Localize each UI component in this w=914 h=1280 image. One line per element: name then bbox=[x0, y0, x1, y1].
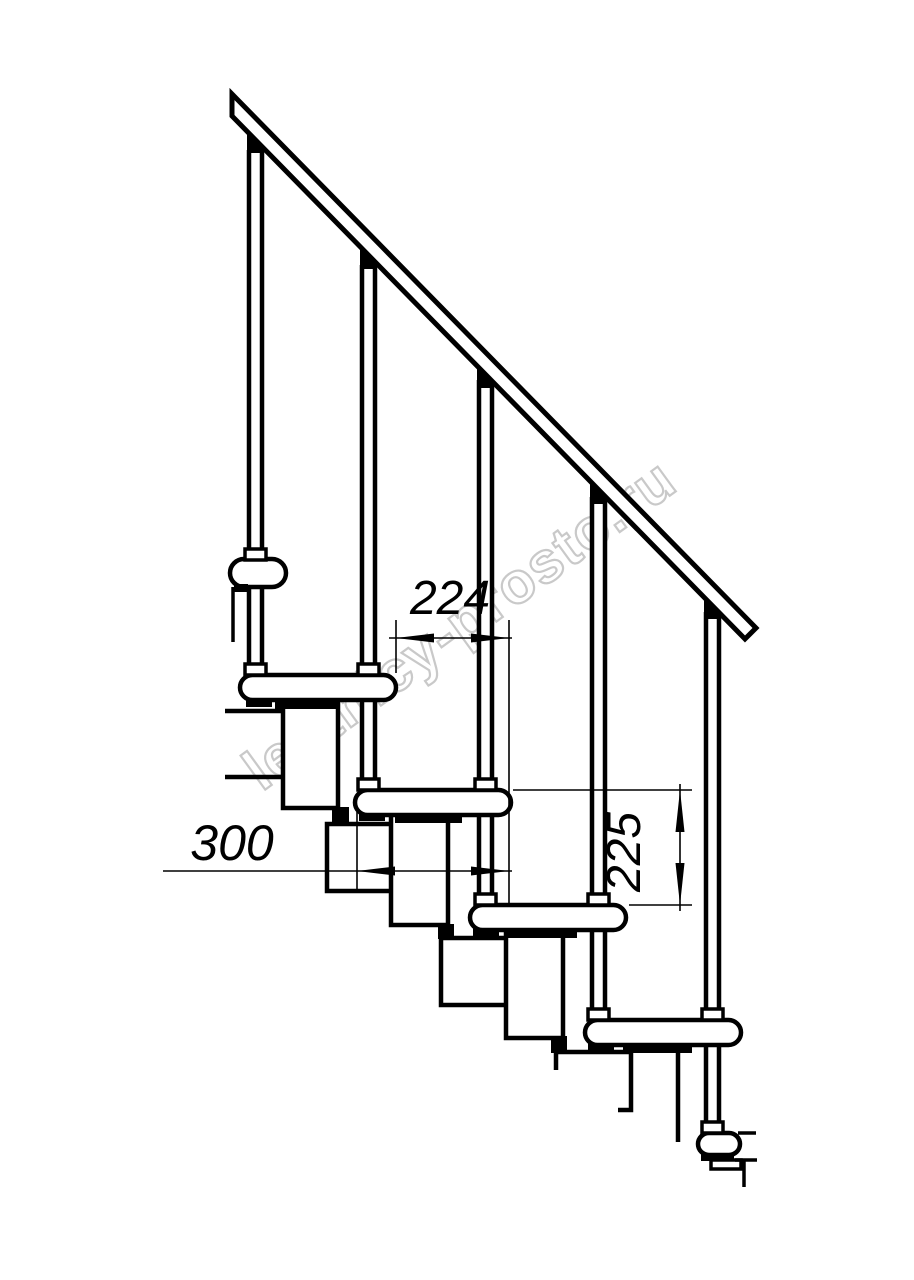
module-neck-1 bbox=[283, 700, 338, 808]
module-neck-2 bbox=[391, 812, 448, 925]
dim-label-300: 300 bbox=[190, 815, 274, 871]
dim-label-225: 225 bbox=[598, 812, 651, 893]
staircase-drawing-canvas: lestnicy-prosto.ru bbox=[0, 0, 914, 1280]
technical-drawing: lestnicy-prosto.ru bbox=[0, 0, 914, 1280]
module-neck-3 bbox=[506, 928, 563, 1038]
baluster-3 bbox=[479, 380, 492, 908]
foot-assembly bbox=[711, 1160, 757, 1187]
baluster-2 bbox=[362, 265, 375, 793]
module-square-3 bbox=[556, 1052, 631, 1110]
tread-5-partial bbox=[698, 1133, 756, 1155]
tread-3 bbox=[470, 905, 626, 930]
baluster-5 bbox=[706, 612, 719, 1138]
baluster-1 bbox=[249, 150, 262, 678]
tread-1 bbox=[240, 675, 396, 700]
dim-label-224: 224 bbox=[409, 572, 490, 625]
tread-2 bbox=[355, 790, 511, 815]
tread-4 bbox=[585, 1020, 741, 1045]
baluster-4 bbox=[592, 497, 605, 1023]
